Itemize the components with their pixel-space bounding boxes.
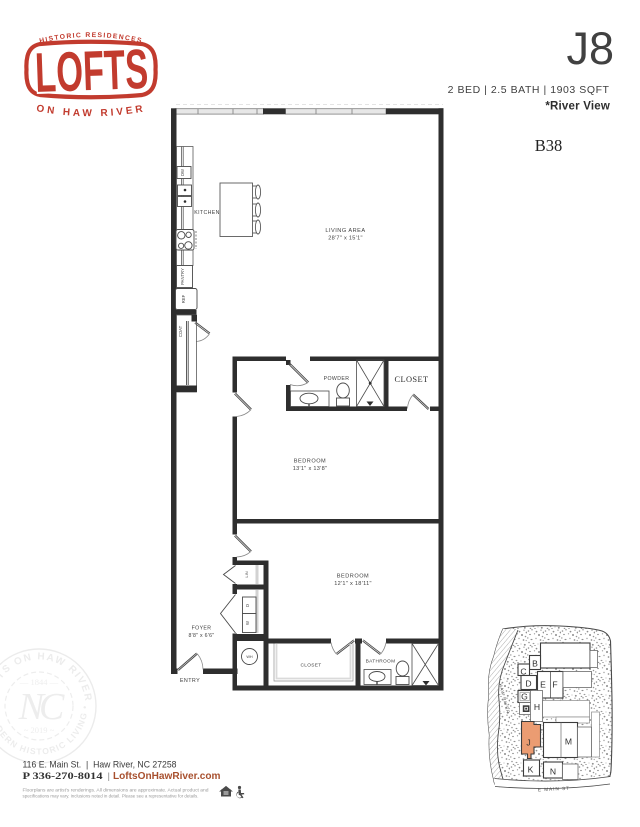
svg-text:REF: REF xyxy=(181,294,186,303)
svg-text:F: F xyxy=(552,680,557,690)
svg-text:CLOSET: CLOSET xyxy=(301,663,322,669)
svg-text:J8: J8 xyxy=(566,23,614,74)
svg-text:M: M xyxy=(565,737,572,747)
svg-text:LOFTS: LOFTS xyxy=(34,37,149,104)
svg-text:NC: NC xyxy=(18,686,65,728)
svg-text:LIN: LIN xyxy=(244,571,249,577)
svg-text:B38: B38 xyxy=(535,136,563,155)
svg-text:BEDROOM: BEDROOM xyxy=(337,574,369,580)
svg-text:Floorplans are artist's render: Floorplans are artist's renderings. All … xyxy=(23,788,210,793)
svg-text:specifications may vary. Inclu: specifications may vary. Inclusions note… xyxy=(23,794,199,799)
svg-text:BATHROOM: BATHROOM xyxy=(366,659,396,665)
svg-text:2 BED | 2.5 BATH | 1903 SQFT: 2 BED | 2.5 BATH | 1903 SQFT xyxy=(448,84,610,96)
svg-text:*River View: *River View xyxy=(545,101,610,113)
svg-text:ON HAW RIVER: ON HAW RIVER xyxy=(36,103,147,119)
svg-text:12'1" x 18'11": 12'1" x 18'11" xyxy=(334,581,372,587)
svg-text:|: | xyxy=(108,771,110,782)
svg-text:DW: DW xyxy=(180,169,185,176)
svg-text:~ 2019 ~: ~ 2019 ~ xyxy=(24,725,55,735)
svg-text:KITCHEN: KITCHEN xyxy=(194,210,220,216)
svg-text:8'8" x 6'6": 8'8" x 6'6" xyxy=(189,633,215,639)
svg-text:28'7" x 15'1": 28'7" x 15'1" xyxy=(328,236,363,242)
svg-text:N: N xyxy=(550,767,556,777)
svg-text:WH: WH xyxy=(246,655,253,659)
svg-text:K: K xyxy=(528,765,534,775)
svg-text:B: B xyxy=(532,659,538,669)
svg-text:13'1" x 13'8": 13'1" x 13'8" xyxy=(293,466,328,472)
svg-text:G: G xyxy=(521,692,528,702)
svg-text:— 1844 —: — 1844 — xyxy=(19,677,59,687)
svg-text:COAT: COAT xyxy=(178,325,183,337)
svg-text:E MAIN ST: E MAIN ST xyxy=(538,786,570,793)
svg-text:FOYER: FOYER xyxy=(192,626,212,632)
svg-text:LoftsOnHawRiver.com: LoftsOnHawRiver.com xyxy=(113,771,221,782)
svg-text:D: D xyxy=(525,679,531,689)
svg-text:116 E. Main St. | Haw River,: 116 E. Main St. | Haw River, NC 27258 xyxy=(23,760,177,771)
svg-text:P 336-270-8014: P 336-270-8014 xyxy=(23,771,103,782)
svg-text:LIVING AREA: LIVING AREA xyxy=(325,228,365,234)
svg-text:PANTRY: PANTRY xyxy=(180,268,185,285)
svg-text:E: E xyxy=(540,680,546,690)
svg-text:BEDROOM: BEDROOM xyxy=(294,459,326,465)
svg-text:ENTRY: ENTRY xyxy=(180,678,200,684)
svg-text:J: J xyxy=(526,738,530,748)
svg-text:CLOSET: CLOSET xyxy=(394,375,428,384)
svg-text:POWDER: POWDER xyxy=(324,376,350,382)
svg-text:W: W xyxy=(245,621,250,625)
svg-text:H: H xyxy=(534,702,540,712)
svg-text:D: D xyxy=(245,604,250,607)
